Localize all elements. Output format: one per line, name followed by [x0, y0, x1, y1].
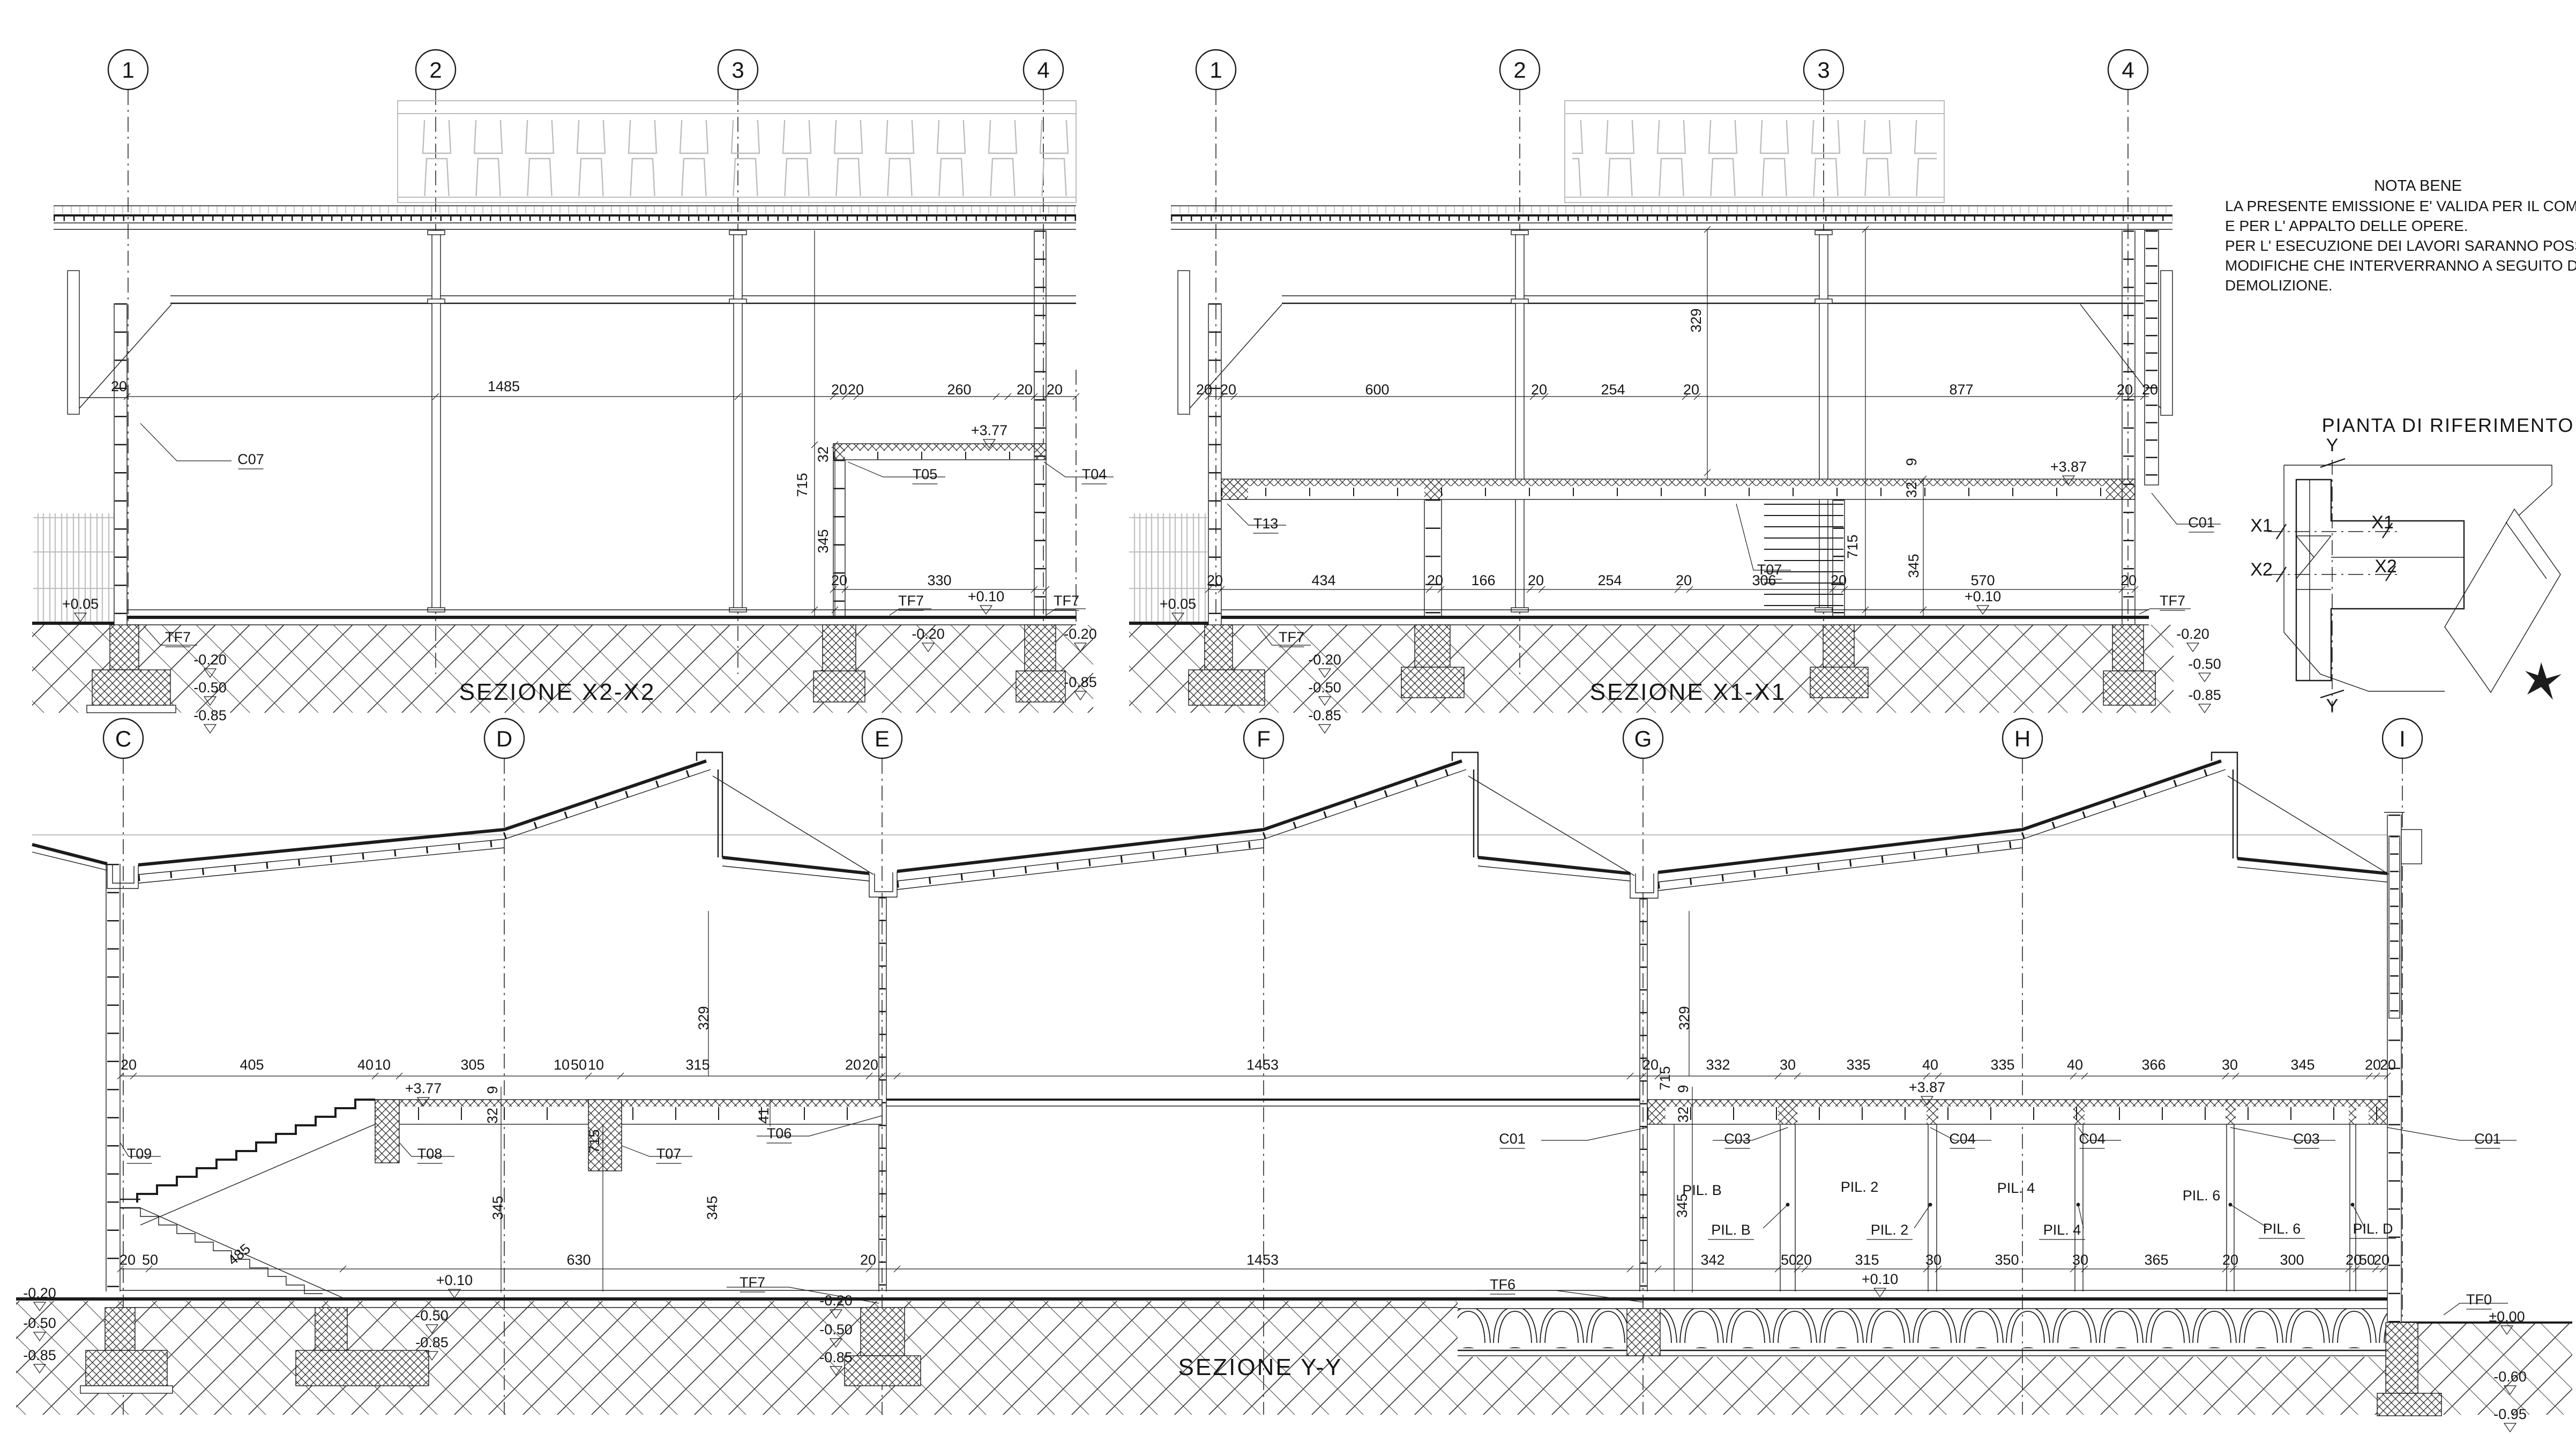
grid-label: H [2014, 726, 2030, 751]
dim-label: PIL. 6 [2183, 1187, 2221, 1204]
dim-label: 20 [1642, 1057, 1659, 1073]
dim-label: 20 [2373, 1252, 2390, 1268]
dim-label: TF7 [165, 629, 191, 645]
plan-title: PIANTA DI RIFERIMENTO [2322, 414, 2574, 436]
valley-column-g [1640, 898, 1647, 1291]
dim-label: -0.20 [23, 1285, 56, 1301]
dim-label: -0.85 [1308, 707, 1341, 723]
dim-label: 20 [831, 382, 847, 398]
dim-label: 20 [2380, 1057, 2396, 1073]
dim-label: T07 [656, 1146, 682, 1162]
dim-label: 332 [1706, 1057, 1730, 1073]
dim-label: T08 [417, 1146, 443, 1162]
note-line: DEMOLIZIONE. [2225, 277, 2333, 294]
dim-label: 20 [1220, 382, 1236, 398]
dim-label: TF7 [1279, 629, 1304, 645]
grid-label: E [875, 726, 890, 751]
dim-label: -0.85 [1064, 674, 1097, 690]
valley-column-e [879, 897, 886, 1291]
dim-label: PIL. B [1711, 1222, 1751, 1238]
dim-label: -0.85 [819, 1349, 853, 1365]
dim-label: TF0 [2466, 1291, 2492, 1308]
eave-left [68, 271, 1076, 414]
dim-label: 9 [1675, 1085, 1691, 1093]
dim-label: 329 [1688, 308, 1704, 332]
dim-label: 20 [1831, 572, 1847, 588]
floor [1129, 610, 2149, 625]
dim-label: PIL. 4 [1997, 1180, 2035, 1196]
eaves [1178, 271, 2172, 415]
dim-label: 50 [571, 1057, 587, 1073]
grid-label: 4 [1037, 57, 1049, 83]
dim-label: 20 [831, 572, 847, 588]
dim-label: 20 [1207, 572, 1223, 588]
steel-column [729, 230, 746, 612]
clerestory [398, 101, 1076, 203]
section-title-x2: SEZIONE X2-X2 [459, 679, 656, 705]
dim-label: -0.50 [193, 679, 227, 696]
stairs [120, 1100, 375, 1298]
dim-label: PIL. D [2353, 1221, 2393, 1237]
dim-label: 300 [2280, 1252, 2304, 1268]
drawing-sheet: 1234 [0, 0, 2576, 1434]
plan-section-mark: Y [2326, 696, 2339, 716]
dim-label: 20 [111, 378, 127, 394]
dim-label: 315 [1855, 1252, 1879, 1268]
dim-label: 20 [2120, 572, 2137, 588]
dim-label: +3.77 [971, 422, 1007, 438]
dim-label: 405 [240, 1057, 264, 1073]
masonry-wall-left [114, 303, 127, 625]
dim-label: 365 [2144, 1252, 2168, 1268]
grid-label: 2 [429, 57, 442, 83]
grid-label: 4 [2122, 57, 2134, 83]
masonry-wall-left [106, 864, 120, 1291]
plan-section-mark: Y [2326, 435, 2339, 455]
dim-label: 485 [225, 1241, 253, 1268]
dim-label: 1453 [1246, 1252, 1279, 1268]
dim-label: PIL. 6 [2263, 1221, 2301, 1237]
steel-column [428, 230, 445, 612]
dim-label: 41 [756, 1108, 772, 1124]
level-marker-icon [204, 725, 216, 733]
mezzanine-slab-right [1647, 1100, 2387, 1124]
steel-column [1511, 230, 1528, 612]
dim-label: +0.10 [1862, 1271, 1898, 1287]
dim-label: 10 [554, 1057, 570, 1073]
level-marker-icon [1874, 1288, 1886, 1297]
dim-label: 570 [1970, 572, 1995, 588]
dim-label: 345 [704, 1196, 720, 1220]
dim-label: C07 [237, 451, 264, 467]
dim-label: TF7 [898, 593, 924, 609]
dim-label: T04 [1082, 466, 1107, 482]
dim-label: 50 [142, 1252, 158, 1268]
dim-label: 40 [357, 1057, 374, 1073]
grid-label: 1 [1209, 57, 1222, 83]
dim-label: 630 [566, 1252, 591, 1268]
dim-label: 32 [1675, 1107, 1691, 1123]
roof-deck [54, 206, 1076, 229]
dim-label: 20 [860, 1252, 876, 1268]
dim-label: 20 [2222, 1252, 2238, 1268]
dim-label: +0.10 [968, 588, 1004, 604]
dim-label: 40 [1922, 1057, 1938, 1073]
note-line: E PER L' APPALTO DELLE OPERE. [2225, 218, 2468, 234]
grid-label: F [1257, 726, 1271, 751]
dim-label: +0.10 [436, 1272, 473, 1288]
dim-label: -0.50 [415, 1308, 449, 1324]
dim-label: 715 [1845, 534, 1861, 558]
level-marker-icon [2504, 1423, 2516, 1432]
dim-label: 254 [1597, 572, 1622, 588]
dim-label: T09 [127, 1146, 152, 1162]
dim-label: 9 [484, 1086, 501, 1094]
grid-label: 3 [731, 57, 744, 83]
dim-label: PIL. 2 [1871, 1222, 1909, 1238]
level-marker-icon [2199, 673, 2211, 682]
dim-label: 20 [2117, 382, 2133, 398]
dim-label: T06 [767, 1125, 792, 1141]
dim-label: -0.20 [912, 626, 945, 642]
dim-label: 20 [2142, 382, 2158, 398]
dim-label: C01 [2474, 1131, 2501, 1147]
dim-label: 335 [1990, 1057, 2014, 1073]
dim-label: 329 [696, 1006, 712, 1030]
dim-label: 600 [1365, 382, 1389, 398]
dim-label: 20 [121, 1057, 137, 1073]
dim-label: 715 [586, 1129, 602, 1153]
plan-section-mark: X1 [2250, 516, 2273, 536]
level-marker-icon [2187, 643, 2199, 652]
grid-label: C [115, 726, 131, 751]
dim-label: ±0.00 [2489, 1309, 2525, 1325]
dim-label: 715 [1657, 1066, 1673, 1090]
grid-label: D [496, 726, 512, 751]
dim-label: -0.85 [23, 1347, 56, 1363]
grid-label: G [1634, 726, 1652, 751]
dim-label: 10 [375, 1057, 391, 1073]
note-block: NOTA BENE LA PRESENTE EMISSIONE E' VALID… [2225, 177, 2576, 294]
masonry-wall-grid4 [1034, 230, 1046, 616]
dim-label: 330 [927, 572, 951, 588]
dim-label: 434 [1311, 572, 1335, 588]
dim-label: TF7 [740, 1274, 765, 1290]
dim-label: 329 [1676, 1006, 1692, 1030]
dim-label: +0.10 [1965, 588, 2001, 604]
dim-label: -0.85 [193, 707, 227, 723]
dim-label: 32 [484, 1108, 501, 1124]
dim-label: 306 [1752, 572, 1776, 588]
section-x1x1: 1234 [1129, 50, 2221, 733]
plan-section-mark: X1 [2371, 512, 2394, 533]
ground-hatch [1458, 1357, 2387, 1415]
dim-label: +0.05 [1160, 596, 1196, 612]
dim-label: 20 [1196, 382, 1212, 398]
grid-label: 2 [1513, 57, 1526, 83]
dim-label: -0.85 [2188, 687, 2221, 703]
dim-label: 345 [1906, 554, 1922, 578]
floor [32, 610, 1076, 625]
dim-label: 166 [1471, 572, 1495, 588]
cad-canvas: 1234 [0, 0, 2576, 1434]
dim-label: 20 [848, 382, 864, 398]
dim-label: -0.20 [2176, 626, 2209, 642]
dim-label: 20 [1017, 382, 1033, 398]
dim-label: 32 [1903, 482, 1920, 498]
dim-lines [124, 230, 1114, 645]
grid-label: 3 [1817, 57, 1830, 83]
dim-label: 1485 [488, 378, 520, 394]
dim-label: -0.20 [193, 652, 227, 668]
roof-deck [1171, 206, 2172, 229]
dim-label: 315 [685, 1057, 710, 1073]
note-line: PER L' ESECUZIONE DEI LAVORI SARANNO POS… [2225, 237, 2576, 254]
dim-label: 32 [815, 446, 831, 462]
dim-label: 20 [1531, 382, 1547, 398]
dim-label: PIL. B [1682, 1182, 1722, 1198]
dim-label: 20 [1528, 572, 1544, 588]
dim-label: -0.50 [23, 1315, 56, 1331]
sawtooth-roof [32, 752, 2391, 898]
level-marker-icon [2199, 704, 2211, 713]
partition-wall [1424, 499, 1442, 616]
section-title-yy: SEZIONE Y-Y [1178, 1354, 1343, 1380]
dim-label: +3.87 [1909, 1079, 1945, 1095]
dim-label: TF7 [1054, 593, 1079, 609]
dim-label: 50 [1781, 1252, 1797, 1268]
dim-label: -0.60 [2493, 1369, 2527, 1385]
dim-label: 20 [2365, 1057, 2381, 1073]
dim-label: +0.05 [62, 596, 99, 612]
dim-label: C03 [2293, 1131, 2320, 1147]
dim-label: 1453 [1246, 1057, 1279, 1073]
dim-label: 305 [460, 1057, 484, 1073]
dim-label: T13 [1253, 516, 1279, 532]
dim-label: 345 [815, 529, 831, 553]
dim-label: 9 [1903, 458, 1920, 466]
dim-label: C01 [2188, 514, 2215, 531]
masonry-wall-grid4 [2122, 230, 2159, 625]
dim-label: 40 [2067, 1057, 2083, 1073]
dim-label: T05 [913, 466, 938, 482]
plan-linework [2268, 459, 2562, 713]
dim-label: TF7 [2160, 593, 2185, 609]
dim-label: C04 [2079, 1131, 2105, 1147]
dim-label: 715 [794, 473, 810, 497]
note-line: LA PRESENTE EMISSIONE E' VALIDA PER IL C… [2225, 198, 2576, 214]
plan-section-mark: X2 [2375, 556, 2397, 577]
dim-label: PIL. 4 [2043, 1222, 2081, 1238]
slab-elevation-mid [886, 1100, 1640, 1106]
dim-label: 20 [1427, 572, 1443, 588]
dim-label: 20 [1676, 572, 1692, 588]
dim-label: 345 [490, 1196, 506, 1220]
dim-lines [1205, 226, 2221, 645]
dim-label: 20 [1047, 382, 1063, 398]
vaulted-floor [1458, 1309, 2387, 1356]
dim-label: -0.50 [2188, 656, 2221, 672]
dim-label: 30 [1925, 1252, 1942, 1268]
dim-label: -0.50 [819, 1321, 853, 1338]
note-title: NOTA BENE [2374, 177, 2462, 195]
dim-label: 877 [1949, 382, 1973, 398]
note-line: MODIFICHE CHE INTERVERRANNO A SEGUITO DE… [2225, 257, 2576, 274]
dim-label: 30 [2222, 1057, 2238, 1073]
mezzanine-slab [833, 444, 1046, 460]
dim-label: 10 [588, 1057, 604, 1073]
dim-label: 20 [862, 1057, 878, 1073]
north-arrow-icon [2525, 662, 2562, 700]
dim-label: -0.20 [1064, 626, 1097, 642]
dim-label: 20 [1796, 1252, 1812, 1268]
grid-label: I [2399, 726, 2406, 751]
grid-label: 1 [122, 57, 134, 83]
dim-label: 260 [947, 382, 971, 398]
clerestory [1565, 101, 1944, 203]
dim-label: PIL. 2 [1841, 1179, 1879, 1195]
dim-label: -0.20 [1308, 652, 1341, 668]
dim-label: 30 [1780, 1057, 1796, 1073]
dim-label: +3.77 [405, 1080, 442, 1096]
dim-label: 350 [1995, 1252, 2019, 1268]
mezzanine-slab-left [375, 1100, 882, 1171]
dim-label: TF6 [1490, 1276, 1515, 1293]
plan-section-mark: X2 [2250, 559, 2273, 580]
dim-label: 335 [1846, 1057, 1870, 1073]
dim-label: C03 [1724, 1131, 1751, 1147]
level-marker-icon [1319, 725, 1331, 733]
dim-label: -0.20 [819, 1293, 853, 1309]
dim-label: C04 [1949, 1131, 1976, 1147]
section-yy: CDEFGHI [16, 719, 2572, 1432]
dim-label: 20 [845, 1057, 861, 1073]
dim-label: 366 [2141, 1057, 2166, 1073]
dim-label: -0.85 [415, 1334, 449, 1350]
dim-label: 254 [1601, 382, 1625, 398]
dim-label: 20 [1683, 382, 1699, 398]
plan-marks: YX1X1X2X2Y [2250, 435, 2397, 716]
dim-label: 50 [2359, 1252, 2375, 1268]
steel-column [1815, 230, 1832, 612]
dim-label: C01 [1499, 1131, 1526, 1147]
stair-wall [1833, 499, 1845, 616]
section-title-x1: SEZIONE X1-X1 [1590, 679, 1787, 705]
dim-label: 30 [2072, 1252, 2088, 1268]
dim-label: 20 [120, 1252, 136, 1268]
dim-label: +3.87 [2050, 459, 2087, 475]
ceiling-slab [1221, 479, 2135, 499]
dim-label: -0.95 [2493, 1406, 2527, 1422]
dim-label: -0.50 [1308, 679, 1341, 696]
reference-plan: PIANTA DI RIFERIMENTO YX1X1X2X2Y [2250, 414, 2574, 716]
dim-label: 345 [2290, 1057, 2314, 1073]
dim-label: 342 [1700, 1252, 1724, 1268]
section-x2x2: 1234 [32, 50, 1114, 733]
